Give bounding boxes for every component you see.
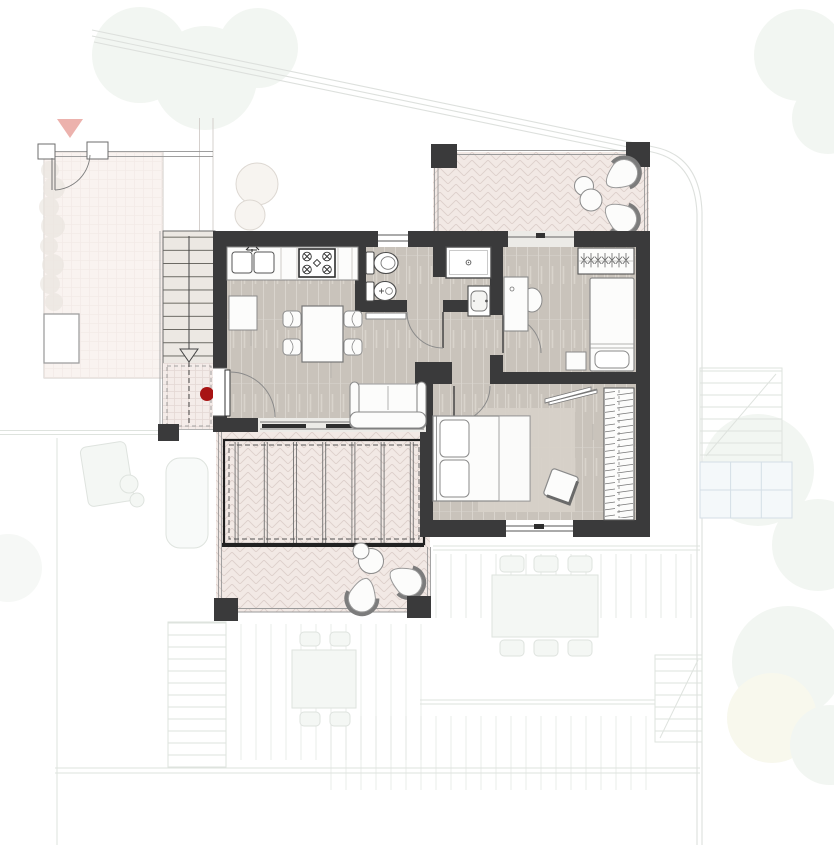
pergola-slats bbox=[226, 442, 422, 543]
nightstand bbox=[566, 352, 586, 370]
duvet-fold bbox=[499, 416, 530, 501]
gate-post bbox=[38, 144, 55, 159]
wall-shower-partition bbox=[433, 247, 446, 277]
dining-chair bbox=[344, 311, 362, 327]
terrace-top bbox=[431, 142, 650, 241]
cooktop-icon bbox=[299, 249, 335, 277]
terrace-bottom bbox=[214, 432, 431, 621]
wardrobe-hangers bbox=[578, 248, 634, 274]
dining-chair bbox=[344, 339, 362, 355]
double-bed bbox=[433, 416, 530, 501]
column bbox=[158, 424, 179, 441]
side-table bbox=[580, 189, 602, 211]
dining-table bbox=[302, 306, 343, 362]
sofa bbox=[350, 382, 426, 428]
bedroom2-window bbox=[506, 520, 573, 537]
staircase bbox=[158, 231, 215, 441]
dining-chair bbox=[283, 311, 301, 327]
toilet-icon bbox=[366, 252, 398, 274]
sofa-back bbox=[350, 412, 426, 428]
single-bed bbox=[590, 278, 634, 371]
wardrobe-hangers bbox=[604, 388, 634, 520]
floor-plan-canvas bbox=[0, 0, 834, 845]
shower-icon bbox=[446, 247, 491, 278]
pillow bbox=[440, 420, 469, 457]
column bbox=[214, 598, 238, 621]
wall-bath-bottom-left bbox=[355, 300, 407, 312]
bathroom-window bbox=[378, 231, 408, 247]
wall-hall-bedroom1 bbox=[490, 355, 503, 384]
base-cabinet bbox=[229, 296, 257, 330]
wall-bedrooms-divider bbox=[490, 372, 650, 384]
planter bbox=[44, 314, 79, 363]
pillow bbox=[440, 460, 469, 497]
floor-plan-svg bbox=[0, 0, 834, 845]
pillow bbox=[595, 351, 629, 368]
wall-right bbox=[636, 231, 650, 537]
column bbox=[407, 596, 431, 618]
side-table bbox=[353, 543, 369, 559]
washbasin-icon bbox=[468, 286, 490, 316]
dining-chair bbox=[283, 339, 301, 355]
entry-dot-marker bbox=[200, 387, 214, 401]
desk bbox=[504, 277, 528, 331]
radiator-shelf bbox=[366, 313, 406, 319]
wall-top bbox=[213, 231, 650, 247]
bidet-icon bbox=[366, 282, 396, 302]
wall-hall-corner bbox=[415, 362, 452, 384]
terrace-door-top bbox=[508, 231, 574, 247]
column bbox=[431, 144, 457, 168]
